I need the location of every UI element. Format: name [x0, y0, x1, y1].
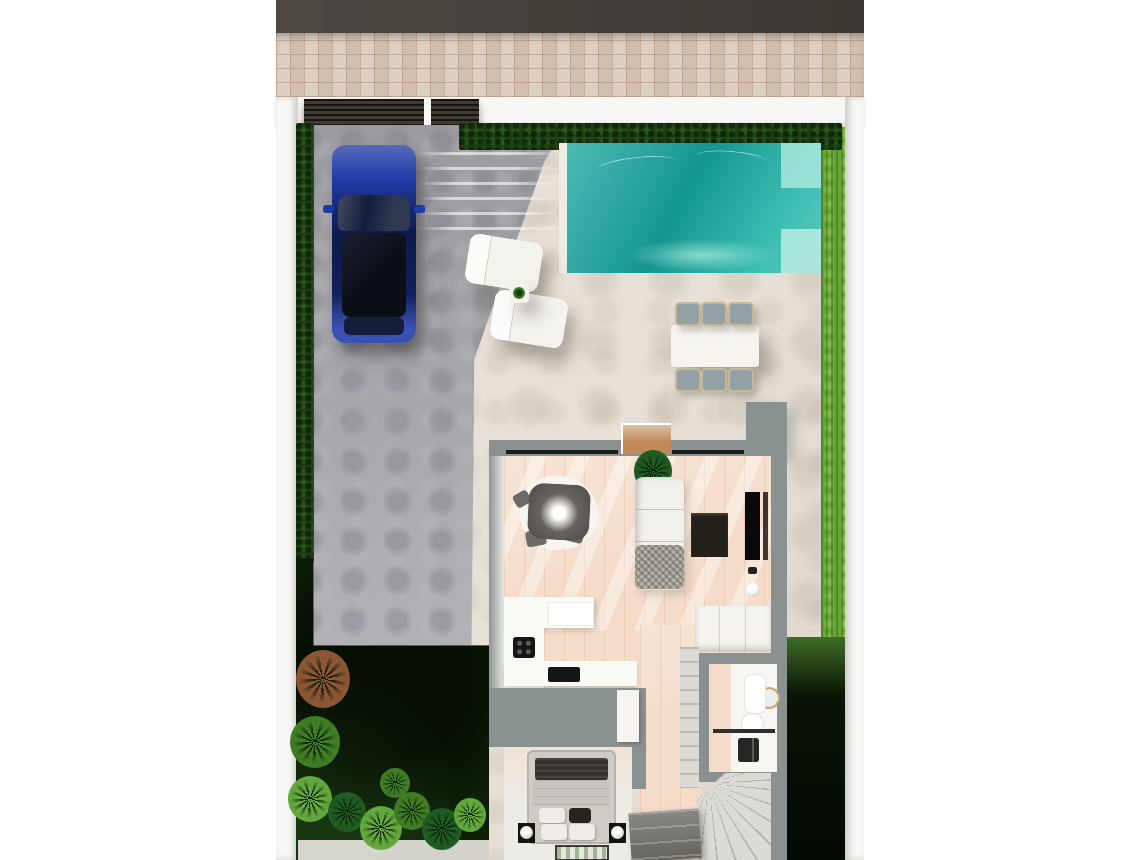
- bathroom-back-wall: [709, 664, 731, 772]
- outdoor-chair-3: [728, 302, 754, 326]
- pool-shallow-glow: [627, 239, 777, 271]
- house-left-wall: [489, 456, 504, 688]
- leaf-plant: [380, 768, 410, 798]
- outdoor-chair-1: [675, 302, 701, 326]
- bed-pillow-3: [569, 824, 595, 840]
- tv-screen: [745, 492, 760, 560]
- tv-cabinet: [691, 513, 728, 557]
- pendant-light-glare: [540, 494, 578, 532]
- boundary-wall-right: [845, 97, 864, 860]
- bed-pillow-dark: [569, 808, 591, 823]
- pool-curb: [559, 143, 567, 273]
- palm-rust-plant: [296, 650, 350, 708]
- sofa-throw: [635, 545, 684, 589]
- palm-plant-1: [290, 716, 340, 768]
- bedroom-right-wall: [632, 747, 646, 789]
- side-table-plant: [513, 287, 525, 299]
- car-roof: [342, 233, 406, 317]
- tv-side-panel: [763, 492, 768, 560]
- bed-throw: [535, 758, 608, 780]
- lawn-east-strip: [821, 127, 845, 637]
- bedroom-rug: [555, 845, 609, 860]
- kitchen-tray: [548, 667, 580, 682]
- stairs-storage-box: [628, 809, 701, 860]
- pool-ripple-1: [596, 153, 677, 178]
- sidewalk: [276, 33, 864, 97]
- car-mirror-right: [414, 205, 425, 213]
- page-canvas: [0, 0, 1140, 860]
- floorplan-render: [276, 0, 864, 860]
- house-right-wall: [771, 440, 787, 860]
- pool-steps-bottom: [781, 229, 821, 273]
- floor-lamp: [746, 583, 760, 597]
- outdoor-chair-4: [675, 368, 701, 392]
- swimming-pool: [567, 143, 821, 273]
- patio-door-track-2: [672, 450, 744, 454]
- pool-steps-top: [781, 143, 821, 188]
- bed-pillow-2: [541, 824, 567, 840]
- closet: [695, 606, 771, 652]
- bathroom-sink: [744, 674, 766, 714]
- bush-5: [454, 798, 486, 832]
- car: [332, 145, 416, 343]
- driveway-markings: [416, 152, 561, 240]
- outdoor-chair-2: [701, 302, 727, 326]
- patio-door-track-1: [506, 450, 618, 454]
- street-road: [276, 0, 864, 35]
- bed-duvet: [533, 780, 610, 806]
- cooktop: [513, 637, 535, 658]
- car-rear-window: [344, 317, 404, 335]
- stairs-straight-flight: [680, 647, 699, 788]
- garden-east-strip: [787, 637, 845, 860]
- bed-pillow-1: [539, 808, 565, 823]
- shower-glass: [713, 729, 775, 733]
- car-mirror-left: [323, 205, 334, 213]
- shower-fixture: [738, 738, 759, 762]
- kitchen-sink: [548, 602, 594, 626]
- palm-plant-2: [288, 776, 332, 822]
- patio-door-lintel: [621, 423, 671, 454]
- hedge-left: [296, 123, 314, 563]
- bed: [527, 750, 616, 844]
- speaker: [748, 567, 757, 574]
- outdoor-chair-6: [728, 368, 754, 392]
- nightstand-lamp-right: [611, 826, 624, 839]
- outdoor-dining-table: [671, 325, 759, 367]
- bedroom-door: [617, 690, 639, 742]
- pool-ripple-2: [696, 148, 767, 169]
- car-windshield: [338, 195, 410, 231]
- outdoor-chair-5: [701, 368, 727, 392]
- nightstand-lamp-left: [520, 826, 533, 839]
